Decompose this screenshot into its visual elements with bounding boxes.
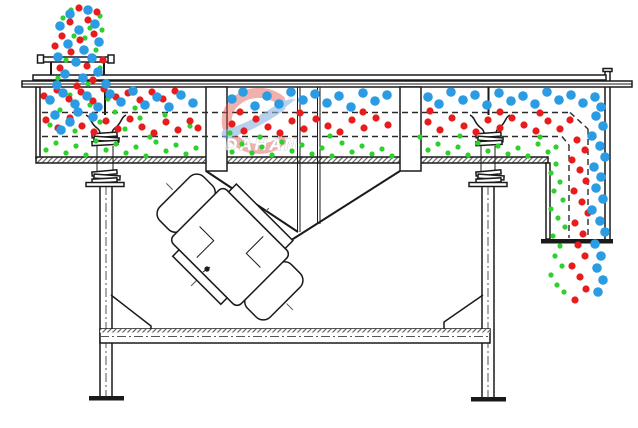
- particle-green: [525, 153, 530, 158]
- particle-red: [582, 285, 589, 292]
- particle-red: [67, 48, 74, 55]
- particle-red: [73, 82, 80, 89]
- particle-blue: [593, 287, 603, 297]
- particle-green: [475, 140, 480, 145]
- particle-blue: [164, 102, 174, 112]
- particle-blue: [506, 96, 516, 106]
- particle-red: [102, 117, 109, 124]
- particle-green: [269, 152, 274, 157]
- particle-green: [72, 128, 77, 133]
- particle-red: [424, 118, 431, 125]
- particle-green: [227, 130, 232, 135]
- particle-blue: [298, 95, 308, 105]
- particle-blue: [56, 125, 66, 135]
- particle-blue: [598, 194, 608, 204]
- spring-base-plate: [469, 183, 507, 187]
- particle-green: [548, 170, 553, 175]
- particle-red: [571, 219, 578, 226]
- particle-green: [349, 149, 354, 154]
- particle-blue: [592, 263, 602, 273]
- particle-blue: [82, 91, 92, 101]
- particle-green: [259, 144, 264, 149]
- right-foot: [471, 397, 506, 402]
- particle-blue: [90, 19, 100, 29]
- particle-red: [99, 56, 106, 63]
- vibrating-screen-diagram: DAHAN ®: [0, 0, 638, 428]
- particle-green: [239, 141, 244, 146]
- particle-green: [43, 147, 48, 152]
- particle-blue: [518, 91, 528, 101]
- particle-blue: [370, 96, 380, 106]
- particle-blue: [116, 97, 126, 107]
- particle-red: [576, 273, 583, 280]
- particle-blue: [600, 152, 610, 162]
- particle-green: [63, 57, 68, 62]
- particle-blue: [358, 88, 368, 98]
- particle-blue: [152, 92, 162, 102]
- particle-blue: [262, 91, 272, 101]
- particle-red: [573, 136, 580, 143]
- particle-red: [484, 116, 491, 123]
- particle-red: [83, 62, 90, 69]
- particle-red: [568, 156, 575, 163]
- particle-red: [544, 117, 551, 124]
- particle-blue: [188, 98, 198, 108]
- particle-green: [122, 126, 127, 131]
- particle-red: [264, 123, 271, 130]
- particle-green: [143, 153, 148, 158]
- particle-green: [545, 149, 550, 154]
- top-clamp-bar: [22, 81, 632, 87]
- particle-green: [55, 75, 60, 80]
- particle-green: [553, 161, 558, 166]
- particle-green: [548, 206, 553, 211]
- particle-green: [550, 233, 555, 238]
- particle-red: [194, 124, 201, 131]
- particle-red: [336, 128, 343, 135]
- particle-blue: [482, 100, 492, 110]
- particle-blue: [50, 110, 60, 120]
- particle-blue: [530, 99, 540, 109]
- particle-blue: [65, 117, 75, 127]
- particle-red: [472, 128, 479, 135]
- particle-green: [113, 141, 118, 146]
- particle-green: [133, 144, 138, 149]
- particle-red: [570, 187, 577, 194]
- right-leg: [471, 186, 506, 402]
- particle-green: [123, 150, 128, 155]
- particle-red: [300, 125, 307, 132]
- particle-blue: [45, 95, 55, 105]
- particle-blue: [52, 80, 62, 90]
- particle-blue: [595, 216, 605, 226]
- particle-blue: [65, 9, 75, 19]
- particle-blue: [310, 89, 320, 99]
- particle-red: [312, 115, 319, 122]
- particle-green: [537, 134, 542, 139]
- particle-blue: [94, 37, 104, 47]
- particle-red: [126, 115, 133, 122]
- particle-red: [436, 126, 443, 133]
- particle-blue: [590, 239, 600, 249]
- particle-blue: [587, 205, 597, 215]
- particle-red: [360, 124, 367, 131]
- particle-green: [560, 197, 565, 202]
- particle-red: [384, 121, 391, 128]
- particle-blue: [73, 107, 83, 117]
- particle-green: [505, 151, 510, 156]
- particle-green: [425, 147, 430, 152]
- spring-coil-lower: [92, 170, 120, 183]
- particle-red: [556, 125, 563, 132]
- particle-blue: [227, 94, 237, 104]
- particle-blue: [74, 25, 84, 35]
- particle-blue: [55, 21, 65, 31]
- left-foot: [89, 396, 124, 401]
- particle-red: [93, 8, 100, 15]
- particle-red: [89, 76, 96, 83]
- particle-blue: [93, 67, 103, 77]
- particle-blue: [591, 111, 601, 121]
- particle-blue: [93, 102, 103, 112]
- particle-blue: [589, 162, 599, 172]
- particle-blue: [458, 95, 468, 105]
- particle-red: [448, 114, 455, 121]
- diagram-canvas: DAHAN ®: [0, 0, 638, 428]
- particle-blue: [598, 121, 608, 131]
- vibration-motor: [127, 144, 332, 349]
- particle-blue: [595, 141, 605, 151]
- particle-blue: [128, 86, 138, 96]
- particle-green: [359, 143, 364, 148]
- particle-red: [76, 36, 83, 43]
- particle-red: [536, 109, 543, 116]
- particle-green: [435, 141, 440, 146]
- particle-red: [571, 296, 578, 303]
- particle-green: [553, 144, 558, 149]
- particles-green: [43, 7, 567, 294]
- particle-red: [582, 177, 589, 184]
- particle-red: [240, 127, 247, 134]
- particle-blue: [382, 90, 392, 100]
- particle-red: [78, 122, 85, 129]
- particle-green: [85, 81, 90, 86]
- particles-blue: [45, 5, 610, 297]
- particle-red: [496, 124, 503, 131]
- particle-blue: [53, 52, 63, 62]
- inlet-flange-cap-right: [108, 55, 114, 63]
- particle-red: [276, 129, 283, 136]
- particle-green: [163, 148, 168, 153]
- particle-red: [66, 18, 73, 25]
- particle-green: [417, 134, 422, 139]
- particle-green: [132, 105, 137, 110]
- particle-blue: [176, 90, 186, 100]
- particle-green: [329, 153, 334, 158]
- particle-red: [579, 230, 586, 237]
- particle-green: [369, 151, 374, 156]
- inlet-flange-cap-left: [38, 55, 44, 63]
- particle-green: [495, 143, 500, 148]
- particle-red: [568, 262, 575, 269]
- particle-green: [535, 141, 540, 146]
- particle-blue: [598, 275, 608, 285]
- particle-blue: [587, 131, 597, 141]
- particle-green: [103, 147, 108, 152]
- particle-green: [465, 152, 470, 157]
- particle-green: [99, 27, 104, 32]
- particle-blue: [596, 251, 606, 261]
- particle-blue: [286, 87, 296, 97]
- particle-red: [496, 108, 503, 115]
- particle-red: [581, 252, 588, 259]
- particle-blue: [140, 100, 150, 110]
- particle-blue: [101, 79, 111, 89]
- particle-green: [249, 150, 254, 155]
- particle-blue: [238, 87, 248, 97]
- particle-red: [58, 32, 65, 39]
- particle-blue: [578, 98, 588, 108]
- right-knee-brace: [444, 295, 483, 329]
- particle-red: [581, 146, 588, 153]
- particle-green: [319, 145, 324, 150]
- particle-blue: [423, 92, 433, 102]
- particle-blue: [87, 53, 97, 63]
- particle-green: [339, 140, 344, 145]
- particle-green: [83, 152, 88, 157]
- particle-red: [138, 123, 145, 130]
- particle-blue: [71, 57, 81, 67]
- particle-red: [574, 241, 581, 248]
- particle-green: [389, 153, 394, 158]
- particle-green: [554, 282, 559, 287]
- cross-beam: [100, 329, 490, 343]
- particle-green: [555, 215, 560, 220]
- particle-green: [137, 115, 142, 120]
- particle-green: [552, 253, 557, 258]
- particle-red: [42, 116, 49, 123]
- particle-blue: [88, 112, 98, 122]
- particle-blue: [446, 87, 456, 97]
- particle-red: [508, 114, 515, 121]
- particle-red: [460, 122, 467, 129]
- particle-blue: [346, 102, 356, 112]
- particle-green: [53, 140, 58, 145]
- particle-green: [557, 243, 562, 248]
- particle-blue: [250, 101, 260, 111]
- particle-blue: [83, 5, 93, 15]
- particle-red: [114, 125, 121, 132]
- particle-green: [327, 133, 332, 138]
- particle-green: [257, 134, 262, 139]
- particle-red: [288, 117, 295, 124]
- particle-red: [578, 198, 585, 205]
- box-left-wall: [36, 87, 40, 158]
- particle-red: [236, 108, 243, 115]
- particle-green: [71, 33, 76, 38]
- left-leg: [89, 186, 124, 401]
- particle-red: [90, 128, 97, 135]
- particle-green: [309, 151, 314, 156]
- particle-green: [93, 47, 98, 52]
- particle-green: [561, 289, 566, 294]
- particle-red: [150, 129, 157, 136]
- spring-base-plate: [86, 183, 124, 187]
- particle-blue: [470, 90, 480, 100]
- particle-red: [252, 115, 259, 122]
- particle-green: [173, 142, 178, 147]
- particle-blue: [105, 89, 115, 99]
- particle-green: [548, 272, 553, 277]
- particle-red: [324, 122, 331, 129]
- particle-red: [186, 117, 193, 124]
- particle-blue: [334, 91, 344, 101]
- particle-green: [562, 224, 567, 229]
- particle-red: [426, 107, 433, 114]
- particle-red: [359, 108, 366, 115]
- particle-blue: [596, 172, 606, 182]
- particle-blue: [63, 39, 73, 49]
- particle-green: [193, 145, 198, 150]
- particle-red: [532, 127, 539, 134]
- particle-green: [279, 139, 284, 144]
- particle-green: [229, 149, 234, 154]
- particle-blue: [78, 73, 88, 83]
- particle-red: [296, 109, 303, 116]
- particle-green: [557, 179, 562, 184]
- left-knee-brace: [111, 295, 151, 329]
- particle-blue: [79, 45, 89, 55]
- particle-blue: [554, 95, 564, 105]
- particle-red: [90, 30, 97, 37]
- particle-red: [162, 118, 169, 125]
- spring-coil-lower: [476, 170, 504, 183]
- right-wall-cap: [603, 69, 612, 72]
- support-channel-right: [400, 87, 421, 171]
- particle-blue: [434, 99, 444, 109]
- particle-green: [299, 142, 304, 147]
- particle-green: [289, 148, 294, 153]
- particle-green: [63, 150, 68, 155]
- particle-blue: [600, 227, 610, 237]
- particle-blue: [58, 88, 68, 98]
- particle-blue: [590, 92, 600, 102]
- particle-green: [73, 143, 78, 148]
- particle-green: [60, 15, 65, 20]
- particle-green: [515, 145, 520, 150]
- particle-green: [47, 122, 52, 127]
- particle-red: [566, 116, 573, 123]
- particle-red: [372, 114, 379, 121]
- particle-green: [559, 263, 564, 268]
- particle-blue: [591, 183, 601, 193]
- particle-green: [445, 150, 450, 155]
- particle-green: [97, 119, 102, 124]
- particle-green: [551, 188, 556, 193]
- particle-red: [520, 121, 527, 128]
- particle-green: [153, 139, 158, 144]
- particle-blue: [566, 90, 576, 100]
- particle-green: [183, 151, 188, 156]
- particle-blue: [274, 99, 284, 109]
- particle-green: [485, 148, 490, 153]
- particle-green: [162, 112, 167, 117]
- particle-green: [379, 146, 384, 151]
- particle-green: [457, 133, 462, 138]
- top-cover-plate: [33, 75, 606, 80]
- particle-blue: [322, 98, 332, 108]
- particle-blue: [542, 87, 552, 97]
- particle-blue: [596, 102, 606, 112]
- particle-red: [576, 166, 583, 173]
- particle-red: [174, 126, 181, 133]
- particle-red: [348, 116, 355, 123]
- particle-green: [93, 138, 98, 143]
- particle-green: [112, 109, 117, 114]
- particle-blue: [60, 69, 70, 79]
- particle-red: [228, 120, 235, 127]
- particle-red: [75, 4, 82, 11]
- particle-red: [51, 42, 58, 49]
- particle-blue: [494, 88, 504, 98]
- particle-green: [455, 144, 460, 149]
